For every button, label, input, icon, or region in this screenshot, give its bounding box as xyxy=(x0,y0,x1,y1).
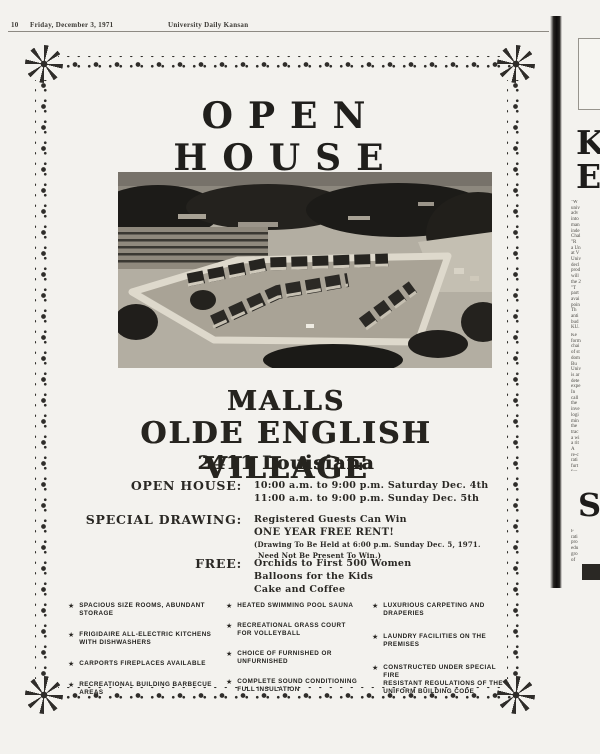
ornament-border-top xyxy=(58,56,512,73)
adjacent-dark-ad-block xyxy=(582,564,600,580)
special-drawing-section: SPECIAL DRAWING: Registered Guests Can W… xyxy=(62,512,481,560)
star-icon: ★ xyxy=(68,631,74,639)
star-icon: ★ xyxy=(226,622,232,630)
feature-text: CARPORTS FIREPLACES AVAILABLE xyxy=(79,660,206,668)
feature-item: ★ CONSTRUCTED UNDER SPECIAL FIRE RESISTA… xyxy=(372,664,512,696)
feature-text: CHOICE OF FURNISHED OR UNFURNISHED xyxy=(237,650,372,666)
ad-headline: OPEN HOUSE xyxy=(60,95,512,179)
header-rule xyxy=(8,31,549,32)
free-lines: Orchids to First 500 Women Balloons for … xyxy=(254,556,412,595)
header-date: Friday, December 3, 1971 xyxy=(30,21,113,29)
star-icon: ★ xyxy=(226,602,232,610)
special-drawing-label: SPECIAL DRAWING: xyxy=(62,512,254,527)
feature-text: RECREATIONAL BUILDING BARBECUE AREAS xyxy=(79,681,226,697)
feature-item: ★ HEATED SWIMMING POOL SAUNA xyxy=(226,602,372,610)
ornament-corner-rosette xyxy=(497,45,535,83)
adjacent-column-text: "W univ adv into man inde Chal "R a Un a… xyxy=(571,200,600,330)
page-fold-rule xyxy=(550,16,562,588)
star-icon: ★ xyxy=(68,660,74,668)
feature-column-3: ★ LUXURIOUS CARPETING AND DRAPERIES ★ LA… xyxy=(372,602,512,697)
venue-name-line1: MALLS xyxy=(60,386,512,417)
feature-text: CONSTRUCTED UNDER SPECIAL FIRE RESISTANT… xyxy=(383,664,512,696)
adjacent-column-text: Ke form chai of st dom Bu Univ is ar det… xyxy=(571,333,600,471)
star-icon: ★ xyxy=(226,678,232,686)
open-house-lines: 10:00 a.m. to 9:00 p.m. Saturday Dec. 4t… xyxy=(254,478,489,504)
free-item-balloons: Balloons for the Kids xyxy=(254,571,412,582)
feature-item: ★ COMPLETE SOUND CONDITIONING FULL INSUL… xyxy=(226,678,372,694)
feature-text: LUXURIOUS CARPETING AND DRAPERIES xyxy=(383,602,512,618)
feature-item: ★ RECREATIONAL GRASS COURT FOR VOLLEYBAL… xyxy=(226,622,372,638)
star-icon: ★ xyxy=(68,681,74,689)
free-item-orchids: Orchids to First 500 Women xyxy=(254,558,412,569)
newspaper-page: 10 Friday, December 3, 1971 University D… xyxy=(0,0,600,754)
venue-name-line2: OLDE ENGLISH VILLAGE xyxy=(60,416,512,486)
ornament-corner-rosette xyxy=(25,676,63,714)
feature-text: COMPLETE SOUND CONDITIONING FULL INSULAT… xyxy=(237,678,357,694)
page-number: 10 xyxy=(11,21,19,29)
adjacent-headline-letter: E xyxy=(576,160,600,193)
special-drawing-prize: ONE YEAR FREE RENT! xyxy=(254,527,481,538)
feature-text: FRIGIDAIRE ALL-ELECTRIC KITCHENS WITH DI… xyxy=(79,631,211,647)
feature-text: SPACIOUS SIZE ROOMS, ABUNDANT STORAGE xyxy=(79,602,226,618)
aerial-photo-apartment-complex xyxy=(118,172,492,368)
open-house-label: OPEN HOUSE: xyxy=(62,478,254,493)
feature-item: ★ CARPORTS FIREPLACES AVAILABLE xyxy=(68,660,226,668)
feature-item: ★ CHOICE OF FURNISHED OR UNFURNISHED xyxy=(226,650,372,666)
feature-text: HEATED SWIMMING POOL SAUNA xyxy=(237,602,353,610)
feature-item: ★ RECREATIONAL BUILDING BARBECUE AREAS xyxy=(68,681,226,697)
open-house-hours-sunday: 11:00 a.m. to 9:00 p.m. Sunday Dec. 5th xyxy=(254,493,489,504)
special-drawing-fineprint-1: (Drawing To Be Held at 6:00 p.m. Sunday … xyxy=(254,540,481,549)
feature-item: ★ SPACIOUS SIZE ROOMS, ABUNDANT STORAGE xyxy=(68,602,226,618)
adjacent-column-text: F rati pro edu gro of xyxy=(571,529,600,563)
feature-text: LAUNDRY FACILITIES ON THE PREMISES xyxy=(383,633,512,649)
adjacent-drop-cap: S xyxy=(578,486,600,524)
venue-address: 2411 Louisiana xyxy=(60,452,512,474)
feature-column-2: ★ HEATED SWIMMING POOL SAUNA ★ RECREATIO… xyxy=(226,602,372,697)
star-icon: ★ xyxy=(372,602,378,610)
star-icon: ★ xyxy=(68,602,74,610)
feature-column-1: ★ SPACIOUS SIZE ROOMS, ABUNDANT STORAGE … xyxy=(68,602,226,697)
ornament-border-left xyxy=(35,80,52,679)
special-drawing-line: Registered Guests Can Win xyxy=(254,514,481,525)
free-item-cake: Cake and Coffee xyxy=(254,584,412,595)
star-icon: ★ xyxy=(372,664,378,672)
feature-item: ★ LAUNDRY FACILITIES ON THE PREMISES xyxy=(372,633,512,649)
open-house-hours-saturday: 10:00 a.m. to 9:00 p.m. Saturday Dec. 4t… xyxy=(254,480,489,491)
special-drawing-lines: Registered Guests Can Win ONE YEAR FREE … xyxy=(254,512,481,560)
star-icon: ★ xyxy=(372,633,378,641)
feature-item: ★ LUXURIOUS CARPETING AND DRAPERIES xyxy=(372,602,512,618)
open-house-hours-section: OPEN HOUSE: 10:00 a.m. to 9:00 p.m. Satu… xyxy=(62,478,489,504)
feature-list: ★ SPACIOUS SIZE ROOMS, ABUNDANT STORAGE … xyxy=(68,602,512,697)
feature-text: RECREATIONAL GRASS COURT FOR VOLLEYBALL xyxy=(237,622,346,638)
free-label: FREE: xyxy=(62,556,254,571)
ornament-corner-rosette xyxy=(25,45,63,83)
adjacent-ad-box-outline xyxy=(578,38,600,110)
adjacent-headline-letter: K xyxy=(576,126,600,159)
feature-item: ★ FRIGIDAIRE ALL-ELECTRIC KITCHENS WITH … xyxy=(68,631,226,647)
aerial-photo-graphic xyxy=(118,172,492,368)
free-items-section: FREE: Orchids to First 500 Women Balloon… xyxy=(62,556,412,595)
star-icon: ★ xyxy=(226,650,232,658)
header-paper-name: University Daily Kansan xyxy=(168,21,248,29)
